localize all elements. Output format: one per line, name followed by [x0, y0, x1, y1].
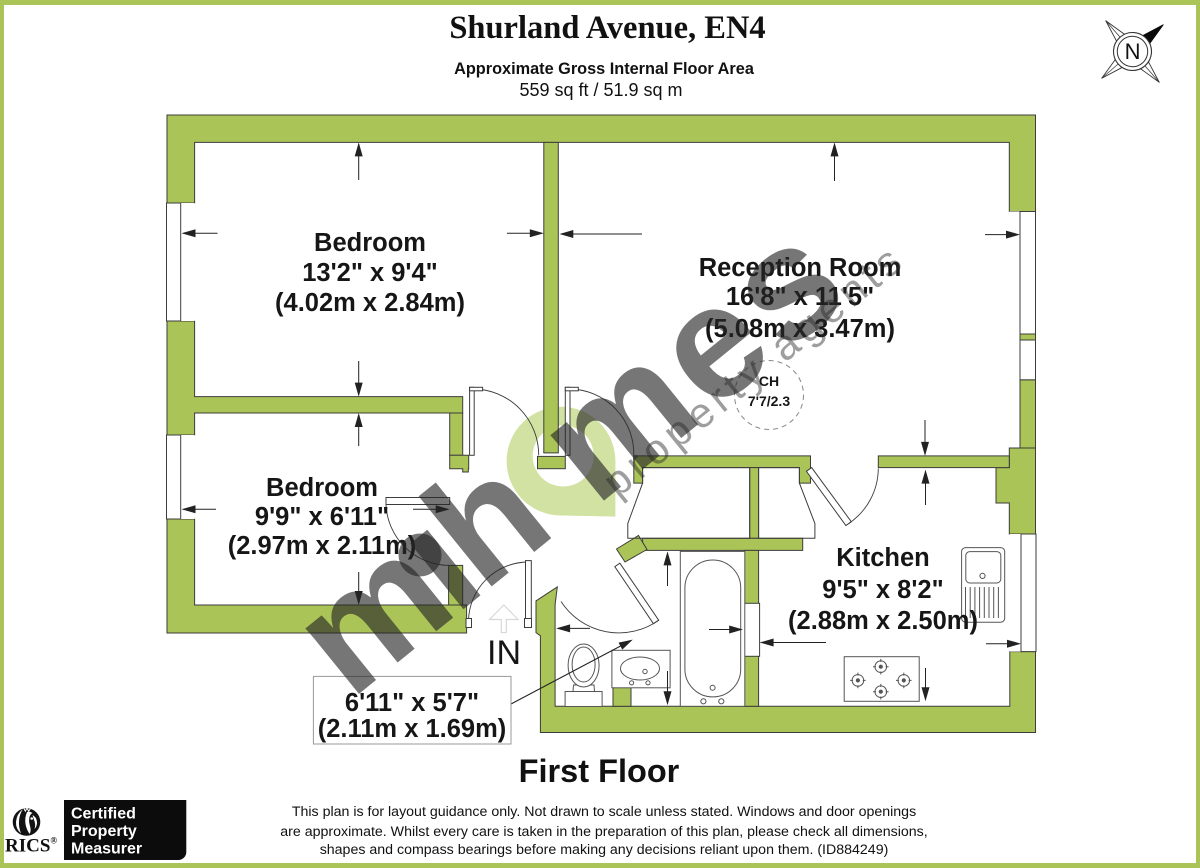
svg-text:IN: IN: [487, 634, 521, 672]
svg-text:Bedroom: Bedroom: [266, 474, 378, 502]
svg-text:This plan is for layout guidan: This plan is for layout guidance only. N…: [292, 804, 916, 820]
svg-text:Measurer: Measurer: [71, 841, 142, 858]
svg-text:9'5" x 8'2": 9'5" x 8'2": [822, 576, 943, 604]
svg-text:are approximate. Whilst every: are approximate. Whilst every care is ta…: [280, 824, 927, 840]
svg-text:shapes and compass bearings be: shapes and compass bearings before makin…: [320, 842, 889, 858]
svg-text:13'2" x 9'4": 13'2" x 9'4": [302, 259, 438, 287]
svg-text:First Floor: First Floor: [519, 753, 680, 789]
svg-text:N: N: [1125, 39, 1141, 64]
svg-text:(4.02m x 2.84m): (4.02m x 2.84m): [275, 289, 465, 317]
svg-text:Kitchen: Kitchen: [836, 544, 930, 572]
svg-text:(2.11m x 1.69m): (2.11m x 1.69m): [318, 715, 507, 743]
svg-text:RICS®: RICS®: [5, 836, 57, 857]
svg-text:Certified: Certified: [71, 806, 136, 823]
svg-text:Property: Property: [71, 823, 137, 840]
svg-text:Bedroom: Bedroom: [314, 229, 426, 257]
svg-text:(2.88m x 2.50m): (2.88m x 2.50m): [788, 607, 978, 635]
